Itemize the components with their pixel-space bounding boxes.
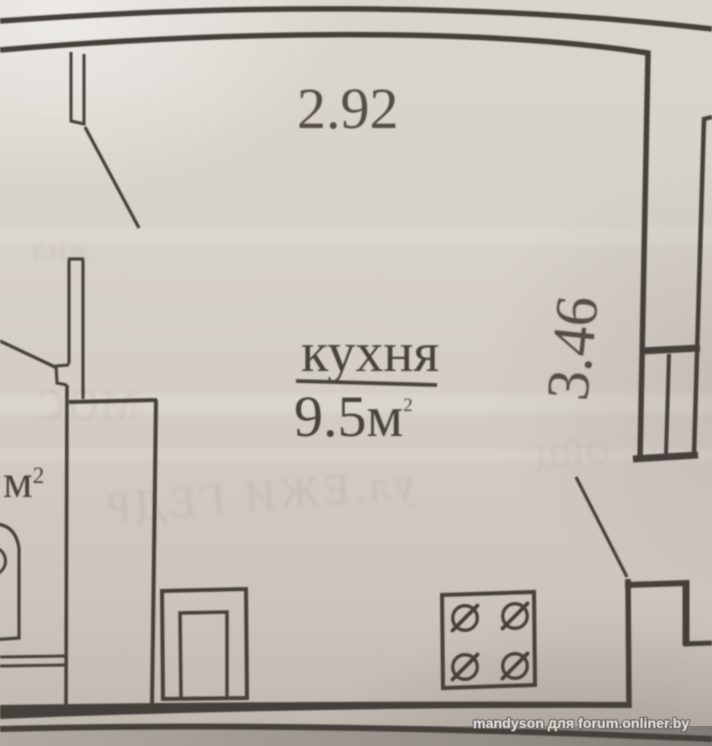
svg-text:ул.ЕЖИ ГЕДР: ул.ЕЖИ ГЕДР: [101, 459, 417, 532]
svg-text:mandyson для forum.onliner.by: mandyson для forum.onliner.by: [473, 716, 689, 732]
svg-text:м2: м2: [3, 456, 44, 508]
svg-text:2.92: 2.92: [297, 76, 399, 141]
svg-text:3.46: 3.46: [534, 293, 611, 403]
svg-text:9.5м2: 9.5м2: [294, 384, 413, 449]
svg-text:мос: мос: [38, 363, 141, 434]
svg-text:кухня: кухня: [301, 322, 439, 384]
svg-text:ОЙЦ: ОЙЦ: [533, 433, 611, 475]
